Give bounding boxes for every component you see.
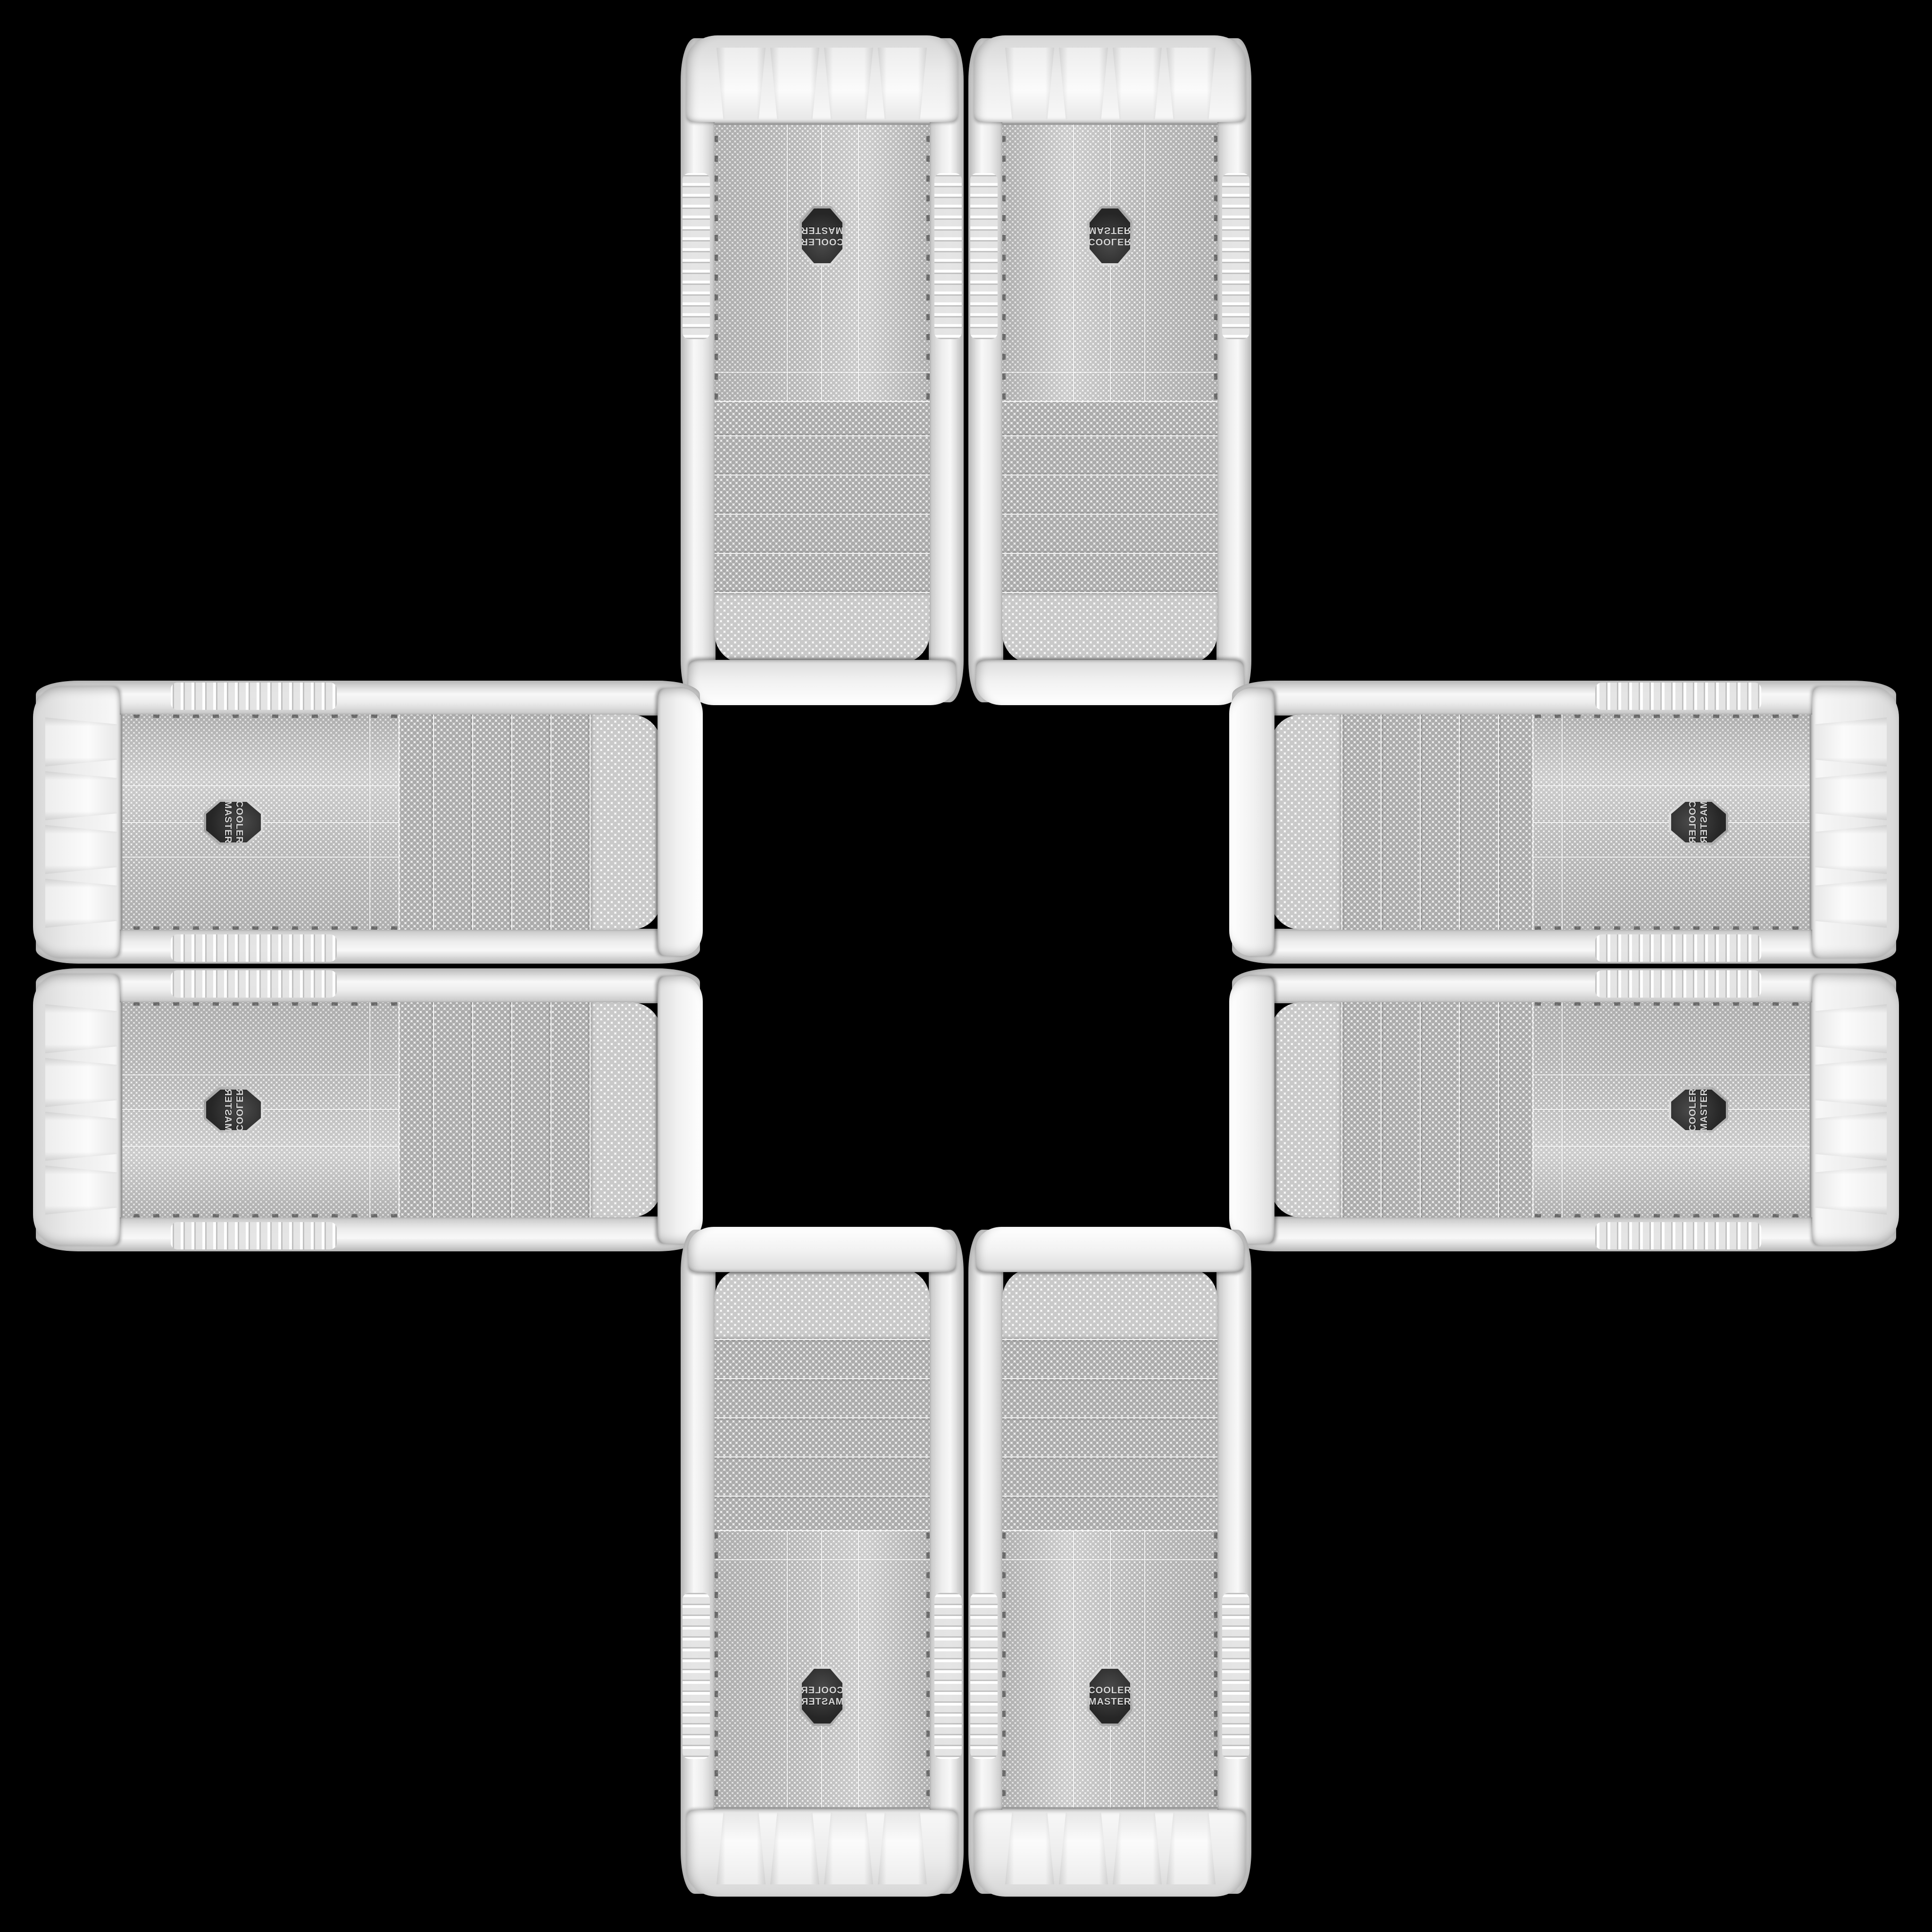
product-collage: COOLER MASTER bbox=[0, 0, 1932, 1932]
bezel-trapezoid-pad bbox=[1113, 48, 1162, 119]
bezel-trapezoid-pad bbox=[1005, 1813, 1054, 1884]
side-rail-left bbox=[1232, 1216, 1896, 1251]
drive-bay-cover bbox=[1002, 1496, 1217, 1535]
drive-bay-cover bbox=[1381, 1002, 1420, 1217]
bezel-trapezoid-pad bbox=[1166, 48, 1216, 119]
drive-bay-cover bbox=[1381, 715, 1420, 930]
side-rail-left bbox=[968, 38, 1003, 702]
bezel-trapezoid-pad bbox=[45, 1004, 117, 1053]
drive-bay-cover bbox=[1002, 436, 1217, 475]
side-rail-right bbox=[36, 968, 700, 1003]
side-rail-right bbox=[36, 929, 700, 964]
side-vent-slots bbox=[121, 1002, 397, 1006]
mesh-seam bbox=[118, 857, 399, 858]
side-rail-left bbox=[929, 1230, 964, 1894]
drive-bay-cover bbox=[1341, 715, 1381, 930]
cooler-master-badge-face: COOLER MASTER bbox=[802, 1669, 842, 1724]
drive-bay-cover bbox=[1002, 1378, 1217, 1417]
case-bottom-right: COOLER MASTER bbox=[968, 1227, 1251, 1897]
bezel-trapezoid-pad bbox=[1059, 1813, 1108, 1884]
drive-bay-cover bbox=[715, 1339, 930, 1378]
side-vent-slots bbox=[1535, 1002, 1811, 1006]
mesh-top-arch bbox=[591, 715, 661, 930]
rail-grip-ribs bbox=[1595, 1222, 1761, 1249]
front-mesh-panel: COOLER MASTER bbox=[715, 120, 930, 664]
side-rail-right bbox=[1216, 38, 1251, 702]
drive-bay-cover bbox=[1002, 554, 1217, 593]
drive-bay-cover bbox=[1002, 1339, 1217, 1378]
case-right-top: COOLER MASTER bbox=[1229, 681, 1899, 964]
mesh-seam bbox=[1002, 372, 1217, 373]
drive-bay-cover bbox=[1002, 1457, 1217, 1496]
drive-bay-cover bbox=[512, 715, 551, 930]
pc-case: COOLER MASTER bbox=[33, 681, 703, 964]
bezel-trapezoid-pad bbox=[1113, 1813, 1162, 1884]
front-mesh-panel: COOLER MASTER bbox=[1271, 1002, 1814, 1217]
bezel-trapezoid-pad bbox=[45, 825, 117, 874]
drive-bay-cover bbox=[1002, 515, 1217, 554]
bezel-trapezoid-pad bbox=[1005, 48, 1054, 119]
top-bezel-cap bbox=[688, 660, 956, 705]
drive-bay-covers bbox=[1341, 715, 1532, 930]
drive-bay-covers bbox=[715, 402, 930, 593]
bottom-bezel bbox=[33, 974, 120, 1246]
bezel-trapezoid-pad bbox=[770, 1813, 819, 1884]
bezel-trapezoid-pad bbox=[45, 879, 117, 928]
bezel-trapezoid-pad bbox=[1059, 48, 1108, 119]
mesh-seam bbox=[118, 1146, 399, 1147]
bezel-trapezoid-pad bbox=[824, 48, 873, 119]
mesh-seam bbox=[1562, 715, 1563, 930]
drive-bay-cover bbox=[473, 1002, 512, 1217]
bezel-trapezoid-pad bbox=[45, 1166, 117, 1215]
badge-text-line2: MASTER bbox=[222, 1089, 233, 1131]
cooler-master-badge-face: COOLER MASTER bbox=[1090, 1669, 1130, 1724]
bottom-bezel bbox=[974, 1810, 1246, 1897]
bezel-trapezoid-pad bbox=[45, 771, 117, 820]
mesh-seam bbox=[1533, 785, 1814, 786]
side-vent-slots bbox=[926, 123, 930, 400]
bottom-bezel bbox=[33, 686, 120, 958]
mesh-top-arch bbox=[1271, 715, 1341, 930]
pc-case: COOLER MASTER bbox=[1229, 968, 1899, 1251]
drive-bay-cover bbox=[512, 1002, 551, 1217]
drive-bay-covers bbox=[400, 1002, 591, 1217]
mesh-seam bbox=[1562, 1002, 1563, 1217]
rail-grip-ribs bbox=[171, 683, 337, 710]
mesh-seam bbox=[787, 120, 788, 401]
cooler-master-badge-face: COOLER MASTER bbox=[206, 1090, 261, 1130]
mesh-seam bbox=[1144, 1531, 1145, 1812]
side-vent-slots bbox=[1002, 123, 1006, 400]
mesh-seam bbox=[715, 1559, 930, 1560]
bezel-trapezoid-pad bbox=[716, 1813, 766, 1884]
mesh-seam bbox=[1073, 1531, 1074, 1812]
cooler-master-badge-face: COOLER MASTER bbox=[1090, 208, 1130, 263]
cooler-master-badge: COOLER MASTER bbox=[799, 1666, 845, 1726]
case-top-left: COOLER MASTER bbox=[681, 35, 964, 705]
mesh-seam bbox=[369, 715, 370, 930]
bezel-trapezoid-pad bbox=[1815, 1112, 1887, 1161]
case-right-bottom: COOLER MASTER bbox=[1229, 968, 1899, 1251]
mesh-seam bbox=[1533, 857, 1814, 858]
rail-grip-ribs bbox=[1595, 970, 1761, 998]
bezel-trapezoid-pad bbox=[1815, 717, 1887, 766]
pc-case: COOLER MASTER bbox=[1229, 681, 1899, 964]
mesh-seam bbox=[858, 120, 859, 401]
cooler-master-badge: COOLER MASTER bbox=[1669, 1087, 1728, 1133]
mesh-seam bbox=[369, 1002, 370, 1217]
case-left-top: COOLER MASTER bbox=[33, 681, 703, 964]
side-rail-right bbox=[681, 1230, 716, 1894]
bottom-bezel bbox=[1812, 974, 1899, 1246]
mesh-seam bbox=[1533, 1074, 1814, 1075]
side-vent-slots bbox=[121, 926, 397, 930]
bezel-trapezoid-pad bbox=[45, 1058, 117, 1107]
badge-text-line2: MASTER bbox=[1089, 225, 1131, 236]
mesh-top-arch bbox=[591, 1002, 661, 1217]
mesh-top-arch bbox=[715, 1268, 930, 1339]
side-rail-right bbox=[1216, 1230, 1251, 1894]
case-left-bottom: COOLER MASTER bbox=[33, 968, 703, 1251]
drive-bay-cover bbox=[715, 554, 930, 593]
drive-bay-cover bbox=[1420, 715, 1459, 930]
drive-bay-cover bbox=[715, 1496, 930, 1535]
side-rail-left bbox=[36, 681, 700, 716]
front-mesh-panel: COOLER MASTER bbox=[1002, 1268, 1217, 1812]
cooler-master-badge: COOLER MASTER bbox=[204, 799, 263, 845]
side-vent-slots bbox=[1535, 715, 1811, 718]
bottom-bezel bbox=[974, 35, 1246, 122]
pc-case: COOLER MASTER bbox=[33, 968, 703, 1251]
badge-text-line1: COOLER bbox=[800, 1685, 844, 1696]
mesh-seam bbox=[787, 1531, 788, 1812]
drive-bay-cover bbox=[715, 1417, 930, 1457]
bezel-trapezoid-pad bbox=[1815, 879, 1887, 928]
drive-bay-cover bbox=[1498, 715, 1537, 930]
bezel-trapezoid-pad bbox=[45, 1112, 117, 1161]
side-vent-slots bbox=[1535, 926, 1811, 930]
mesh-seam bbox=[1144, 120, 1145, 401]
badge-text-line2: MASTER bbox=[801, 225, 843, 236]
rail-grip-ribs bbox=[683, 173, 710, 339]
mesh-top-arch bbox=[715, 593, 930, 664]
mesh-seam bbox=[1002, 1559, 1217, 1560]
cooler-master-badge: COOLER MASTER bbox=[1087, 1666, 1133, 1726]
drive-bay-cover bbox=[1459, 1002, 1498, 1217]
case-top-right: COOLER MASTER bbox=[968, 35, 1251, 705]
cooler-master-badge-face: COOLER MASTER bbox=[206, 802, 261, 842]
mesh-seam bbox=[1073, 120, 1074, 401]
rail-grip-ribs bbox=[1595, 683, 1761, 710]
drive-bay-cover bbox=[434, 1002, 473, 1217]
side-rail-right bbox=[681, 38, 716, 702]
badge-text-line1: COOLER bbox=[233, 1088, 245, 1132]
bezel-trapezoid-pad bbox=[45, 717, 117, 766]
cooler-master-badge: COOLER MASTER bbox=[204, 1087, 263, 1133]
cooler-master-badge-face: COOLER MASTER bbox=[802, 208, 842, 263]
rail-grip-ribs bbox=[934, 1593, 962, 1759]
badge-text-line2: MASTER bbox=[1089, 1696, 1131, 1707]
badge-text-line1: COOLER bbox=[1687, 800, 1699, 844]
rail-grip-ribs bbox=[1222, 173, 1249, 339]
drive-bay-cover bbox=[395, 1002, 434, 1217]
mesh-seam bbox=[1533, 1146, 1814, 1147]
badge-text-line2: MASTER bbox=[222, 801, 233, 843]
rail-grip-ribs bbox=[171, 1222, 337, 1249]
front-mesh-panel: COOLER MASTER bbox=[1271, 715, 1814, 930]
top-bezel-cap bbox=[658, 688, 703, 956]
pc-case: COOLER MASTER bbox=[681, 1227, 964, 1897]
drive-bay-cover bbox=[1498, 1002, 1537, 1217]
front-mesh-panel: COOLER MASTER bbox=[715, 1268, 930, 1812]
drive-bay-cover bbox=[473, 715, 512, 930]
drive-bay-cover bbox=[715, 475, 930, 515]
rail-grip-ribs bbox=[683, 1593, 710, 1759]
drive-bay-cover bbox=[1459, 715, 1498, 930]
badge-text-line1: COOLER bbox=[1088, 1685, 1132, 1696]
top-bezel-cap bbox=[1229, 688, 1274, 956]
drive-bay-cover bbox=[1420, 1002, 1459, 1217]
cooler-master-badge: COOLER MASTER bbox=[1087, 206, 1133, 266]
bezel-trapezoid-pad bbox=[824, 1813, 873, 1884]
cooler-master-badge-face: COOLER MASTER bbox=[1671, 802, 1726, 842]
badge-text-line2: MASTER bbox=[1699, 801, 1710, 843]
side-vent-slots bbox=[715, 123, 718, 400]
top-bezel-cap bbox=[1229, 976, 1274, 1244]
side-vent-slots bbox=[715, 1532, 718, 1809]
side-rail-left bbox=[929, 38, 964, 702]
front-mesh-panel: COOLER MASTER bbox=[118, 1002, 661, 1217]
side-rail-left bbox=[1232, 681, 1896, 716]
side-rail-right bbox=[1232, 929, 1896, 964]
bottom-bezel bbox=[686, 1810, 958, 1897]
side-vent-slots bbox=[926, 1532, 930, 1809]
badge-text-line1: COOLER bbox=[1687, 1088, 1699, 1132]
pc-case: COOLER MASTER bbox=[968, 1227, 1251, 1897]
drive-bay-covers bbox=[1002, 402, 1217, 593]
drive-bay-cover bbox=[434, 715, 473, 930]
badge-text-line1: COOLER bbox=[800, 236, 844, 247]
mesh-seam bbox=[858, 1531, 859, 1812]
side-rail-left bbox=[968, 1230, 1003, 1894]
bottom-bezel bbox=[686, 35, 958, 122]
bezel-trapezoid-pad bbox=[878, 1813, 927, 1884]
bezel-trapezoid-pad bbox=[878, 48, 927, 119]
drive-bay-covers bbox=[400, 715, 591, 930]
bezel-trapezoid-pad bbox=[1815, 1004, 1887, 1053]
drive-bay-covers bbox=[1002, 1339, 1217, 1530]
bezel-trapezoid-pad bbox=[1815, 1166, 1887, 1215]
drive-bay-cover bbox=[551, 715, 591, 930]
front-mesh-panel: COOLER MASTER bbox=[118, 715, 661, 930]
side-rail-right bbox=[1232, 968, 1896, 1003]
top-bezel-cap bbox=[688, 1227, 956, 1272]
rail-grip-ribs bbox=[171, 970, 337, 998]
cooler-master-badge: COOLER MASTER bbox=[1669, 799, 1728, 845]
pc-case: COOLER MASTER bbox=[968, 35, 1251, 705]
drive-bay-cover bbox=[715, 1378, 930, 1417]
badge-text-line2: MASTER bbox=[1699, 1089, 1710, 1131]
drive-bay-cover bbox=[1002, 1417, 1217, 1457]
drive-bay-covers bbox=[715, 1339, 930, 1530]
front-mesh-panel: COOLER MASTER bbox=[1002, 120, 1217, 664]
drive-bay-cover bbox=[715, 1457, 930, 1496]
side-rail-left bbox=[36, 1216, 700, 1251]
side-vent-slots bbox=[1535, 1214, 1811, 1217]
mesh-top-arch bbox=[1002, 1268, 1217, 1339]
case-bottom-left: COOLER MASTER bbox=[681, 1227, 964, 1897]
drive-bay-cover bbox=[395, 715, 434, 930]
mesh-seam bbox=[715, 372, 930, 373]
cooler-master-badge-face: COOLER MASTER bbox=[1671, 1090, 1726, 1130]
rail-grip-ribs bbox=[934, 173, 962, 339]
badge-text-line2: MASTER bbox=[801, 1696, 843, 1707]
drive-bay-cover bbox=[715, 515, 930, 554]
bezel-trapezoid-pad bbox=[1815, 771, 1887, 820]
drive-bay-covers bbox=[1341, 1002, 1532, 1217]
mesh-top-arch bbox=[1002, 593, 1217, 664]
rail-grip-ribs bbox=[1222, 1593, 1249, 1759]
rail-grip-ribs bbox=[970, 1593, 998, 1759]
badge-text-line1: COOLER bbox=[233, 800, 245, 844]
top-bezel-cap bbox=[658, 976, 703, 1244]
cooler-master-badge: COOLER MASTER bbox=[799, 206, 845, 266]
side-vent-slots bbox=[1002, 1532, 1006, 1809]
top-bezel-cap bbox=[976, 660, 1244, 705]
mesh-seam bbox=[118, 1074, 399, 1075]
bottom-bezel bbox=[1812, 686, 1899, 958]
top-bezel-cap bbox=[976, 1227, 1244, 1272]
side-vent-slots bbox=[121, 715, 397, 718]
bezel-trapezoid-pad bbox=[1166, 1813, 1216, 1884]
mesh-seam bbox=[118, 785, 399, 786]
mesh-top-arch bbox=[1271, 1002, 1341, 1217]
rail-grip-ribs bbox=[970, 173, 998, 339]
pc-case: COOLER MASTER bbox=[681, 35, 964, 705]
drive-bay-cover bbox=[1341, 1002, 1381, 1217]
rail-grip-ribs bbox=[171, 934, 337, 962]
side-vent-slots bbox=[1214, 1532, 1217, 1809]
drive-bay-cover bbox=[1002, 397, 1217, 436]
drive-bay-cover bbox=[715, 397, 930, 436]
side-vent-slots bbox=[121, 1214, 397, 1217]
bezel-trapezoid-pad bbox=[770, 48, 819, 119]
bezel-trapezoid-pad bbox=[1815, 825, 1887, 874]
rail-grip-ribs bbox=[1595, 934, 1761, 962]
drive-bay-cover bbox=[551, 1002, 591, 1217]
bezel-trapezoid-pad bbox=[1815, 1058, 1887, 1107]
badge-text-line1: COOLER bbox=[1088, 236, 1132, 247]
bezel-trapezoid-pad bbox=[716, 48, 766, 119]
drive-bay-cover bbox=[715, 436, 930, 475]
side-vent-slots bbox=[1214, 123, 1217, 400]
drive-bay-cover bbox=[1002, 475, 1217, 515]
